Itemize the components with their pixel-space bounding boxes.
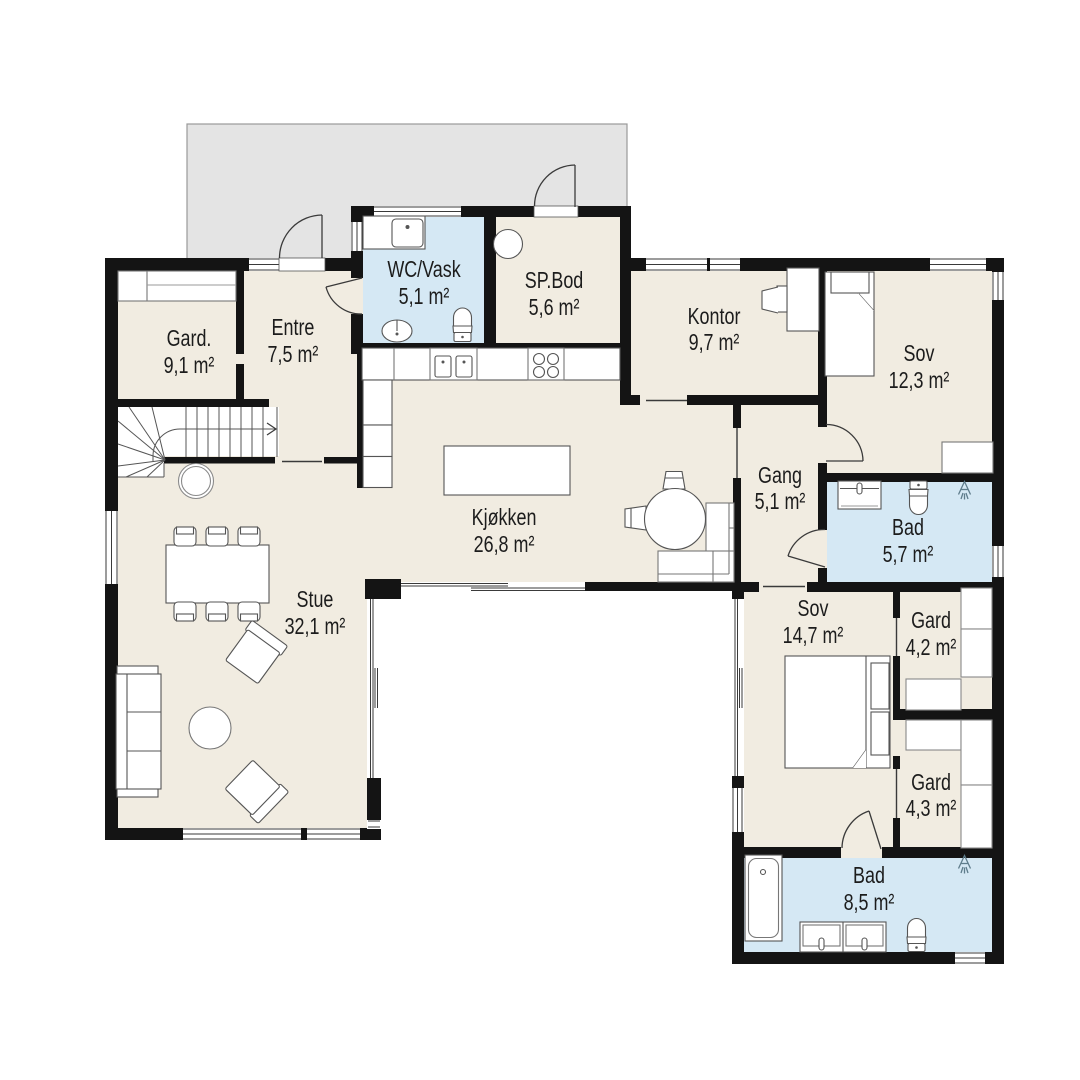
svg-text:8,5 m²: 8,5 m² xyxy=(844,890,895,916)
svg-text:Entre: Entre xyxy=(272,315,315,341)
svg-text:Gard.: Gard. xyxy=(167,326,212,352)
svg-text:5,6 m²: 5,6 m² xyxy=(529,295,580,321)
svg-text:Stue: Stue xyxy=(297,587,334,613)
svg-text:Sov: Sov xyxy=(798,596,829,622)
svg-text:SP.Bod: SP.Bod xyxy=(525,268,583,294)
svg-text:12,3 m²: 12,3 m² xyxy=(889,368,950,394)
svg-text:Gang: Gang xyxy=(758,463,802,489)
svg-text:Gard: Gard xyxy=(911,608,951,634)
svg-text:7,5 m²: 7,5 m² xyxy=(268,342,319,368)
svg-text:Sov: Sov xyxy=(904,341,935,367)
svg-text:WC/Vask: WC/Vask xyxy=(387,257,461,283)
svg-text:4,2 m²: 4,2 m² xyxy=(906,635,957,661)
svg-text:32,1 m²: 32,1 m² xyxy=(285,614,346,640)
svg-text:Bad: Bad xyxy=(892,515,924,541)
svg-text:9,1 m²: 9,1 m² xyxy=(164,353,215,379)
svg-text:Bad: Bad xyxy=(853,863,885,889)
svg-text:Gard: Gard xyxy=(911,770,951,796)
svg-text:5,1 m²: 5,1 m² xyxy=(755,489,806,515)
svg-text:14,7 m²: 14,7 m² xyxy=(783,623,844,649)
svg-text:5,1 m²: 5,1 m² xyxy=(399,284,450,310)
svg-text:Kjøkken: Kjøkken xyxy=(472,505,537,531)
svg-text:26,8 m²: 26,8 m² xyxy=(474,532,535,558)
svg-text:4,3 m²: 4,3 m² xyxy=(906,796,957,822)
svg-text:9,7 m²: 9,7 m² xyxy=(689,330,740,356)
svg-text:5,7 m²: 5,7 m² xyxy=(883,542,934,568)
svg-text:Kontor: Kontor xyxy=(688,304,741,330)
